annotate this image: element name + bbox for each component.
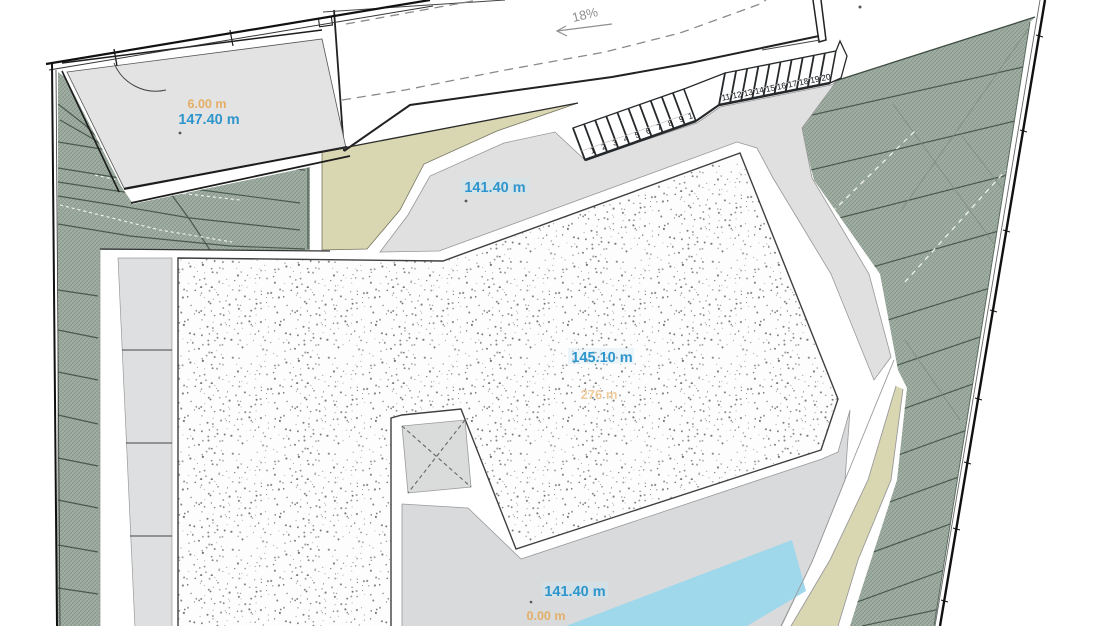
- svg-text:6.00 m: 6.00 m: [188, 97, 227, 111]
- svg-text:0.00 m: 0.00 m: [527, 609, 566, 623]
- svg-text:145.10 m: 145.10 m: [571, 350, 632, 366]
- svg-text:141.40 m: 141.40 m: [544, 584, 605, 600]
- svg-text:276 m: 276 m: [581, 387, 618, 402]
- svg-text:141.40 m: 141.40 m: [464, 180, 525, 196]
- svg-text:147.40 m: 147.40 m: [178, 112, 239, 128]
